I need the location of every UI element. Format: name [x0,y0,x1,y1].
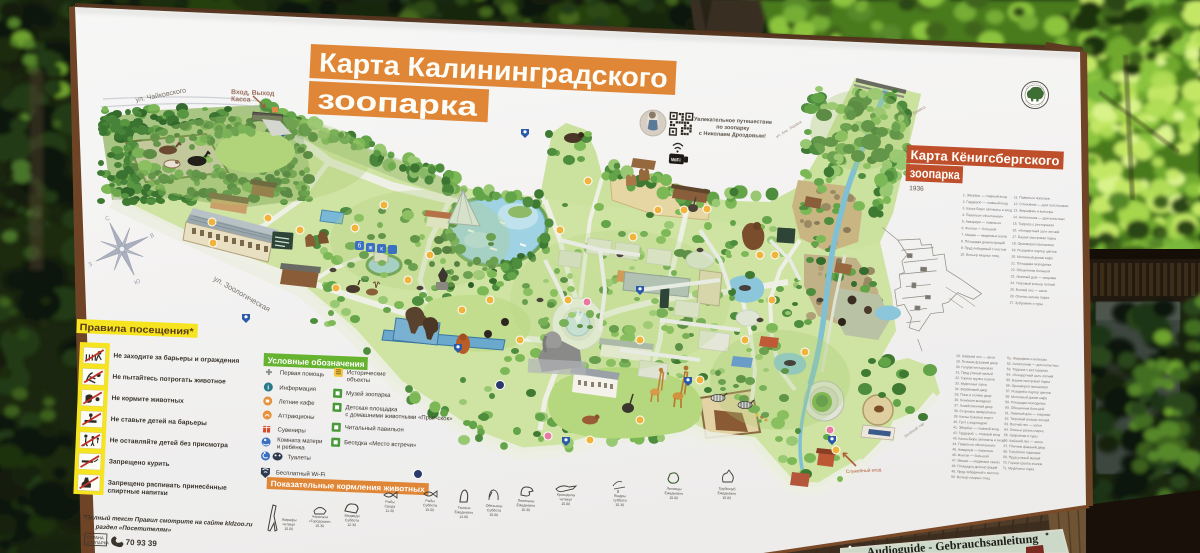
svg-text:15.30: 15.30 [315,524,324,528]
svg-text:объекты: объекты [347,377,371,384]
svg-text:15.00: 15.00 [669,496,678,500]
svg-text:ЗООПАРКА: ЗООПАРКА [86,540,109,546]
svg-text:1936: 1936 [909,185,924,193]
svg-text:12.30: 12.30 [347,523,356,527]
svg-text:зоопарка: зоопарка [910,165,961,182]
svg-text:ж: ж [368,246,372,252]
svg-text:14.00: 14.00 [459,515,468,519]
svg-text:15.00: 15.00 [489,513,498,517]
svg-text:WiFi: WiFi [671,157,681,163]
svg-text:70 93 39: 70 93 39 [125,538,157,548]
svg-text:Туалеты: Туалеты [287,455,311,462]
svg-text:15.00: 15.00 [561,502,570,506]
svg-text:и ребёнка: и ребёнка [277,444,306,451]
svg-text:15.00: 15.00 [284,527,293,531]
svg-text:к: к [380,247,383,253]
svg-text:б: б [358,244,362,250]
svg-text:15.30: 15.30 [615,503,624,507]
svg-text:Касса: Касса [231,96,251,104]
svg-text:Сувениры: Сувениры [277,427,305,434]
svg-text:11.30: 11.30 [385,509,394,513]
svg-text:15.00: 15.00 [425,508,434,512]
svg-text:15.00: 15.00 [722,496,731,500]
svg-text:15.30: 15.30 [521,508,530,512]
